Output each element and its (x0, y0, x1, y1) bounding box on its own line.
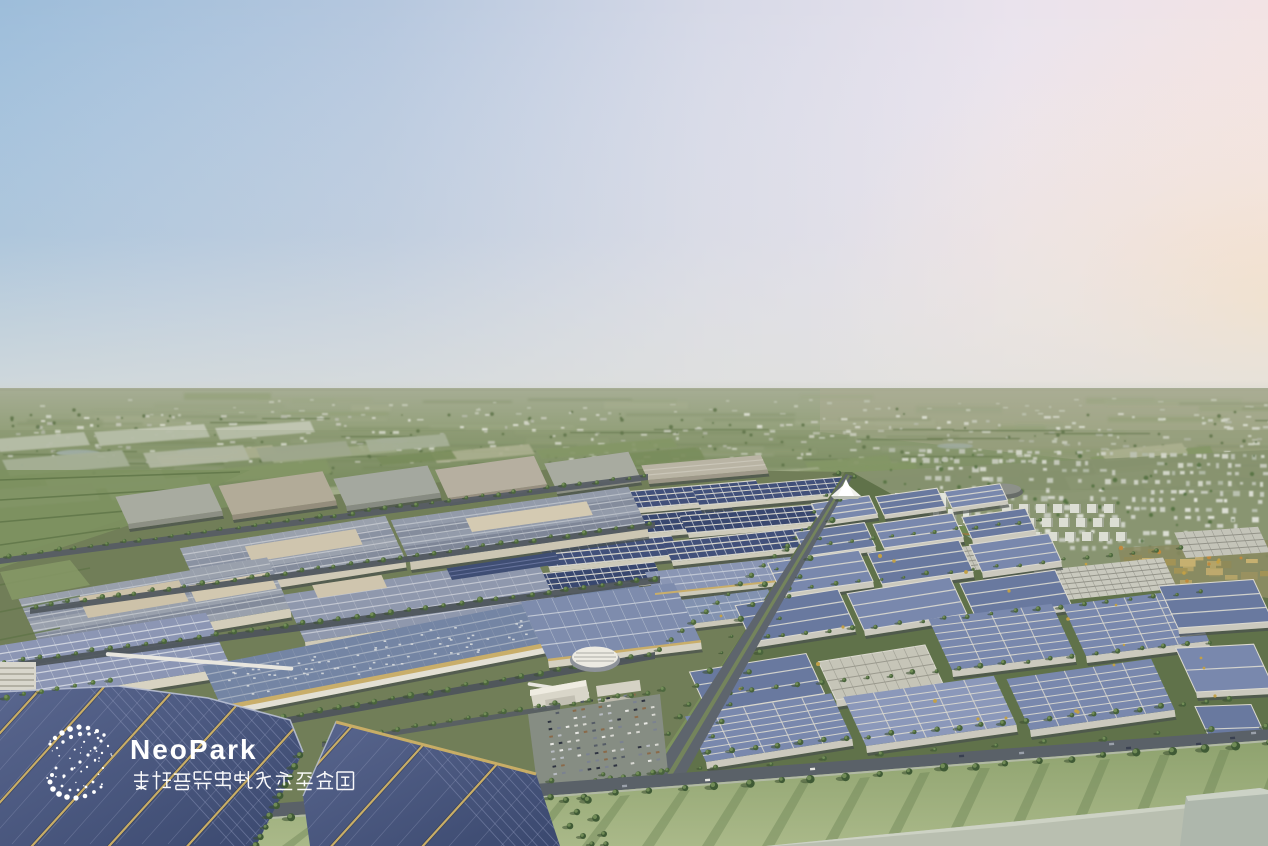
svg-text:NeoPark: NeoPark (130, 734, 258, 765)
